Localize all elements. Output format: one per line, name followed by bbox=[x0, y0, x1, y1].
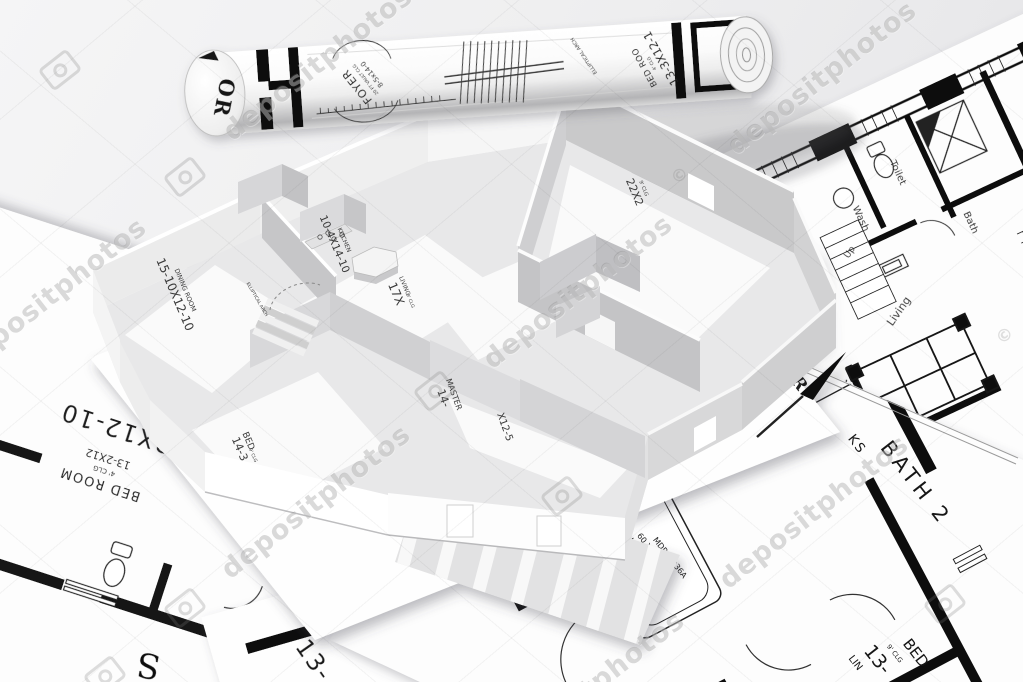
stock-photo-canvas: 3-3X12-10 BED ROOM 4' CLG 13-2X12 PORCH … bbox=[0, 0, 1023, 682]
scene: 3-3X12-10 BED ROOM 4' CLG 13-2X12 PORCH … bbox=[0, 0, 1023, 682]
